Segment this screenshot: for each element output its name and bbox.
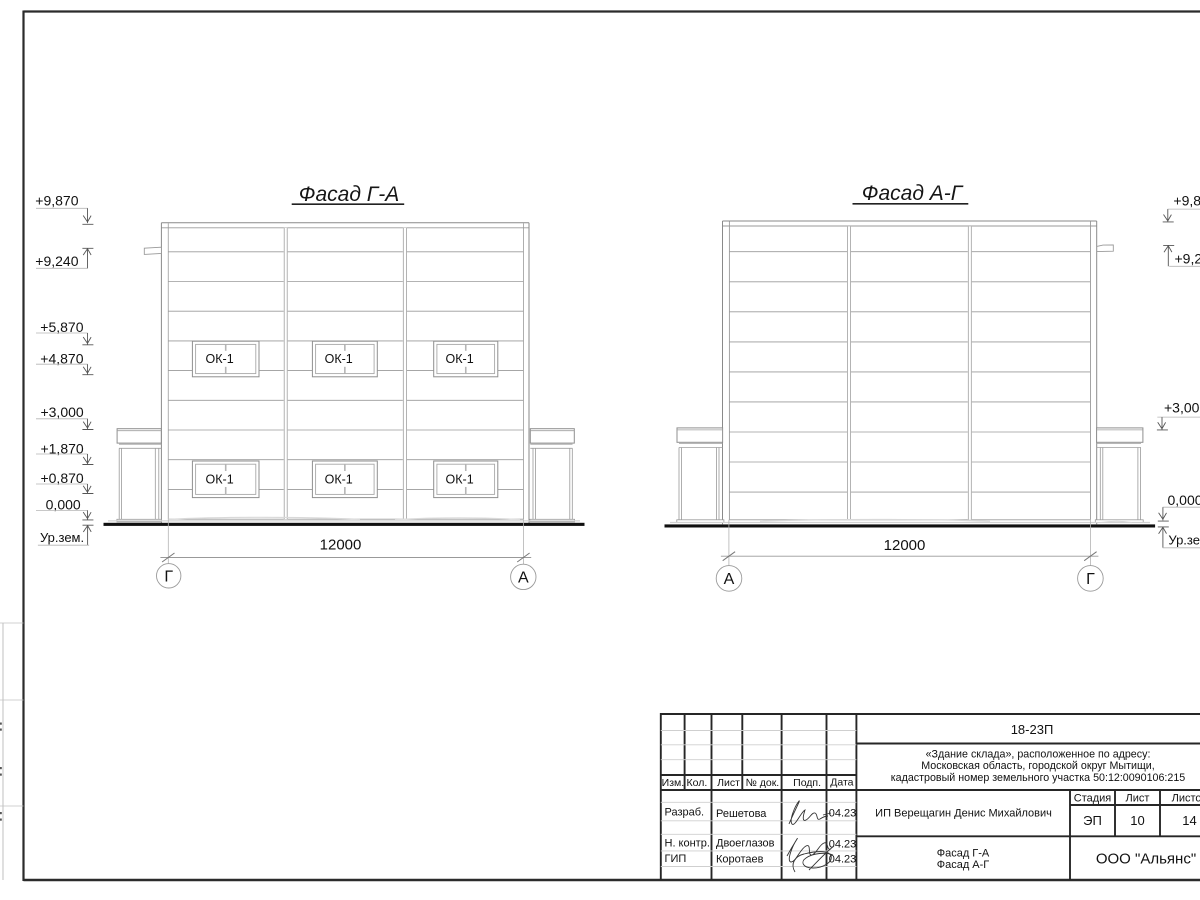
svg-text:Листов: Листов <box>1172 793 1200 805</box>
svg-text:Решетова: Решетова <box>716 808 767 820</box>
svg-text:Фасад Г-А: Фасад Г-А <box>299 183 399 206</box>
svg-text:ОК-1: ОК-1 <box>325 352 353 366</box>
svg-text:Дата: Дата <box>830 776 853 788</box>
svg-text:Лист: Лист <box>717 777 740 789</box>
svg-text:ЭП: ЭП <box>1083 813 1102 828</box>
svg-text:Коротаев: Коротаев <box>716 853 764 865</box>
svg-text:+5,870: +5,870 <box>40 319 83 335</box>
svg-text:Подп.: Подп. <box>793 777 821 789</box>
svg-text:Г: Г <box>164 568 173 585</box>
svg-text:04.23: 04.23 <box>829 807 857 819</box>
svg-text:+0,870: +0,870 <box>40 470 83 486</box>
svg-text:Кол.: Кол. <box>687 777 708 789</box>
svg-text:0,000: 0,000 <box>1168 492 1200 508</box>
svg-text:А: А <box>724 571 735 588</box>
svg-text:ОК-1: ОК-1 <box>206 472 234 486</box>
svg-text:+9,240: +9,240 <box>1175 251 1200 267</box>
svg-text:Фасад А-Г: Фасад А-Г <box>862 182 964 205</box>
svg-text:ИП Верещагин Денис Михайлович: ИП Верещагин Денис Михайлович <box>875 808 1052 820</box>
svg-text:12000: 12000 <box>320 536 362 553</box>
svg-text:ОК-1: ОК-1 <box>206 352 234 366</box>
svg-text:Фасад А-Г: Фасад А-Г <box>937 859 990 871</box>
svg-text:Ур.зем.: Ур.зем. <box>1168 532 1200 547</box>
svg-text:Н. контр.: Н. контр. <box>665 838 710 850</box>
svg-text:+9,870: +9,870 <box>35 192 78 208</box>
svg-text:Г: Г <box>1086 571 1095 588</box>
svg-text:Изм.: Изм. <box>662 777 685 789</box>
svg-text:ООО "Альянс": ООО "Альянс" <box>1096 851 1196 868</box>
svg-text:А: А <box>518 570 529 587</box>
svg-text:18-23П: 18-23П <box>1011 722 1054 737</box>
svg-text:10: 10 <box>1130 813 1144 828</box>
svg-text:ОК-1: ОК-1 <box>446 352 474 366</box>
svg-text:+9,240: +9,240 <box>35 253 78 269</box>
svg-text:+3,000: +3,000 <box>1164 399 1200 415</box>
svg-text:Двоеглазов: Двоеглазов <box>716 837 775 849</box>
svg-text:+3,000: +3,000 <box>40 404 83 420</box>
svg-text:Фасад Г-А: Фасад Г-А <box>937 847 990 859</box>
svg-text:12000: 12000 <box>884 537 926 554</box>
svg-text:04.23: 04.23 <box>829 838 857 850</box>
svg-text:+9,870: +9,870 <box>1173 193 1200 209</box>
svg-text:«Здание склада», расположенное: «Здание склада», расположенное по адресу… <box>926 749 1151 761</box>
svg-text:14: 14 <box>1182 813 1196 828</box>
svg-text:ОК-1: ОК-1 <box>325 472 353 486</box>
svg-text:№ док.: № док. <box>746 777 780 789</box>
svg-text:ГИП: ГИП <box>665 853 687 865</box>
svg-text:Московская область, городской: Московская область, городской округ Мыти… <box>921 760 1154 772</box>
svg-text:Разраб.: Разраб. <box>665 806 705 818</box>
svg-text:Ур.зем.: Ур.зем. <box>40 530 84 545</box>
svg-text:Лист: Лист <box>1126 793 1150 805</box>
svg-text:Стадия: Стадия <box>1074 793 1112 805</box>
svg-text:ОК-1: ОК-1 <box>446 472 474 486</box>
svg-text:кадастровый номер земельного у: кадастровый номер земельного участка 50:… <box>891 772 1185 784</box>
